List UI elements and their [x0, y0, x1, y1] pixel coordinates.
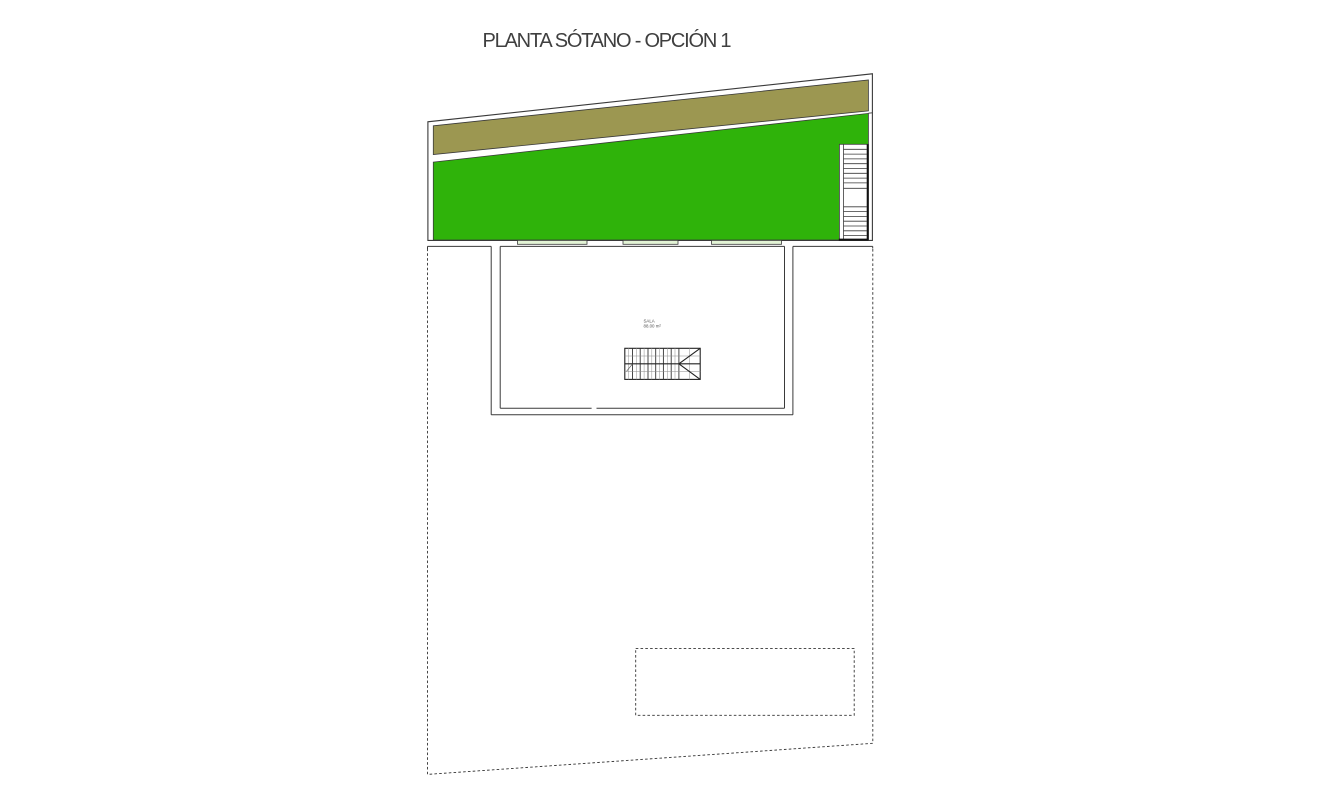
svg-text:PLANTA SÓTANO - OPCIÓN 1: PLANTA SÓTANO - OPCIÓN 1: [483, 29, 732, 52]
svg-text:88.00 m²: 88.00 m²: [644, 324, 662, 329]
